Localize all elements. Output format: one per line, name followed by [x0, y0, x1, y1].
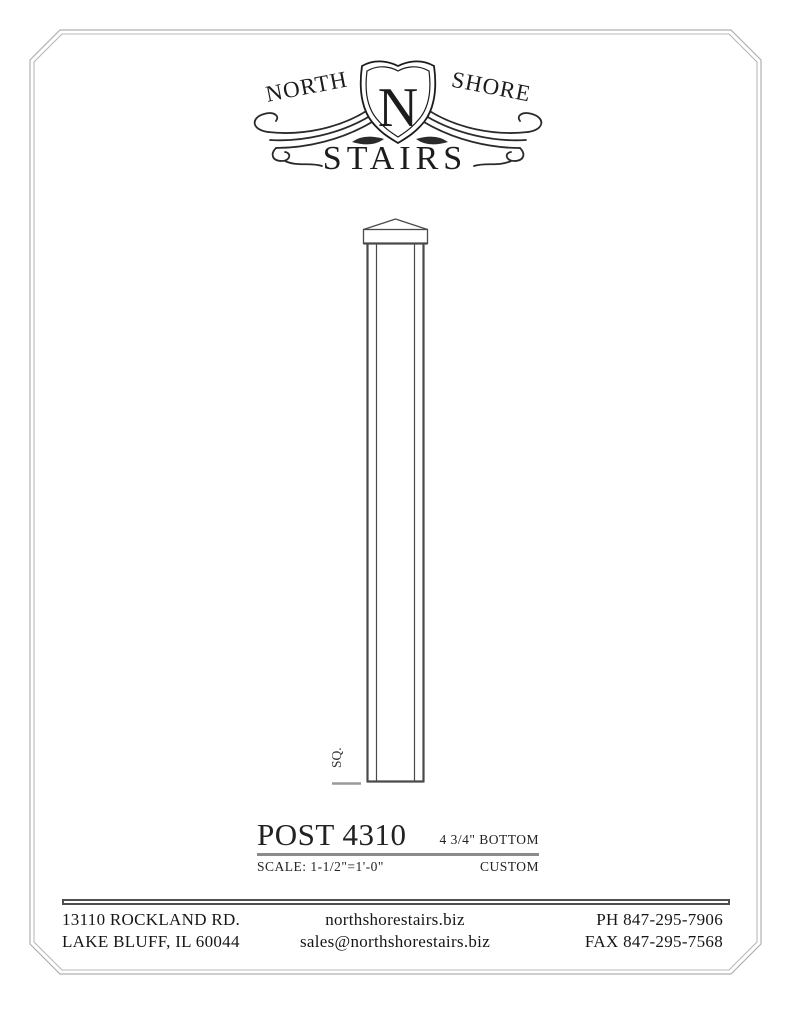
- logo-shore-text: SHORE: [450, 67, 534, 107]
- post-drawing: SQ.: [320, 210, 480, 800]
- title-block: POST 4310 4 3/4" BOTTOM SCALE: 1-1/2"=1'…: [257, 820, 539, 875]
- address-line-1: 13110 ROCKLAND RD.: [62, 909, 240, 931]
- post-body: [367, 244, 425, 782]
- custom-label: CUSTOM: [480, 859, 539, 875]
- website-text: northshorestairs.biz: [300, 909, 490, 931]
- footer-rule: [62, 899, 730, 905]
- shield-letter: N: [378, 77, 418, 139]
- logo-north-text: NORTH: [264, 66, 350, 106]
- footer-web-contact: northshorestairs.biz sales@northshoresta…: [300, 909, 490, 952]
- shield-icon: N: [361, 61, 436, 143]
- post-cap-band: [364, 230, 428, 244]
- scale-label: SCALE: 1-1/2"=1'-0": [257, 859, 384, 875]
- drawing-sheet: N NORTH SHORE STAIRS SQ. POST 4310: [0, 0, 791, 1024]
- footer-address: 13110 ROCKLAND RD. LAKE BLUFF, IL 60044: [62, 909, 240, 952]
- email-text: sales@northshorestairs.biz: [300, 931, 490, 953]
- title-rule: [257, 853, 539, 856]
- post-title: POST 4310: [257, 820, 407, 850]
- fax-text: FAX 847-295-7568: [585, 931, 723, 953]
- square-dimension-label: SQ.: [329, 747, 344, 768]
- bottom-dimension-label: 4 3/4" BOTTOM: [439, 832, 539, 850]
- company-logo: N NORTH SHORE STAIRS: [240, 50, 560, 185]
- logo-stairs-text: STAIRS: [323, 140, 467, 177]
- post-cap-pyramid: [364, 219, 428, 230]
- address-line-2: LAKE BLUFF, IL 60044: [62, 931, 240, 953]
- phone-text: PH 847-295-7906: [585, 909, 723, 931]
- footer-phone-contact: PH 847-295-7906 FAX 847-295-7568: [585, 909, 723, 952]
